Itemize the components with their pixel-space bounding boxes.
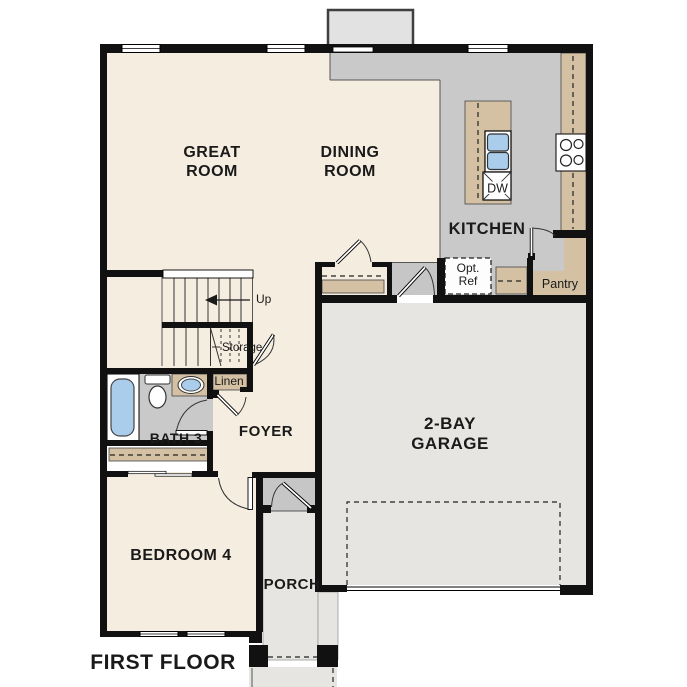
foyer-label: FOYER (239, 423, 293, 440)
plan-title: FIRST FLOOR (90, 651, 236, 674)
bath-right-wall-upper (207, 368, 213, 399)
sink-basin-top (488, 134, 509, 151)
bedroom4-label: BEDROOM 4 (130, 547, 231, 564)
cooktop-burner (574, 140, 583, 149)
closet-front-wall-left (100, 471, 128, 477)
pantry-left-wall (527, 258, 533, 295)
garage-entry-door-opening (397, 295, 433, 303)
kitchen-floor-top (330, 53, 586, 80)
opt-ref-label-line1: Opt. (457, 261, 480, 275)
toilet-bowl (149, 386, 166, 408)
closet-bypass-door-panel (155, 474, 192, 476)
bedroom-right-wall (256, 478, 263, 632)
pantry-label: Pantry (542, 277, 579, 291)
coat-closet-right-wall (387, 262, 392, 303)
vanity-sink-basin (182, 379, 201, 391)
exterior-wall-left (100, 44, 107, 637)
porch-post-left (249, 645, 268, 667)
garage-top-wall (315, 295, 593, 303)
stair-landing (163, 270, 253, 278)
exterior-wall-bedroom-bottom (100, 631, 262, 637)
bathtub (111, 379, 134, 436)
pantry-top-wall (553, 230, 593, 238)
bedroom4-door-leaf (248, 478, 253, 510)
linen-label: Linen (214, 374, 243, 388)
cooktop-burner (561, 155, 572, 166)
pantry-door-pocket (533, 238, 564, 271)
floor-plan: GREAT ROOM DINING ROOM KITCHEN 2-BAY GAR… (0, 0, 687, 687)
stair-mid-wall (162, 322, 253, 328)
floor-plan-svg: GREAT ROOM DINING ROOM KITCHEN 2-BAY GAR… (0, 0, 687, 687)
toilet-tank (145, 375, 170, 384)
up-label: Up (256, 292, 272, 306)
rear-bumpout (328, 10, 413, 47)
window-under-bumpout (333, 47, 373, 52)
bath3-label: BATH 3 (150, 430, 203, 446)
coat-closet-top-wall-right (372, 262, 392, 267)
front-entry-post-left (263, 505, 271, 513)
bedroom-corner-post (249, 631, 262, 643)
closet-bypass-door-panel (128, 471, 166, 473)
entry-top-wall (252, 472, 318, 478)
coat-closet-shelf (322, 280, 384, 293)
coat-closet-top-wall-left (315, 262, 335, 267)
bath-right-wall-lower (207, 431, 213, 477)
opt-ref-label-line2: Ref (459, 274, 478, 288)
garage-entry-right-wall (437, 258, 445, 303)
storage-label: Storage (222, 342, 262, 354)
dining-room-label-line1: DINING (321, 144, 380, 161)
cooktop (556, 134, 586, 171)
great-room-floor (107, 53, 330, 80)
garage-label-line2: GARAGE (411, 434, 489, 453)
dining-room-floor (107, 80, 440, 262)
cooktop-burner (561, 140, 572, 151)
garage-label-line1: 2-BAY (424, 414, 476, 433)
exterior-wall-right (586, 44, 593, 592)
great-room-label-line1: GREAT (183, 144, 240, 161)
sink-basin-bottom (488, 153, 509, 170)
dining-room-label-line2: ROOM (324, 163, 376, 180)
cooktop-burner (574, 156, 583, 165)
closet-front-wall-right (192, 471, 218, 477)
porch-label: PORCH (264, 576, 321, 593)
walkway (249, 667, 337, 687)
kitchen-label: KITCHEN (449, 220, 526, 238)
dishwasher-label: DW (487, 182, 508, 196)
porch-post-right (317, 645, 338, 667)
great-room-label-line2: ROOM (186, 163, 238, 180)
garage-bottom-wall-right (560, 585, 593, 595)
garage-left-wall (315, 262, 322, 592)
